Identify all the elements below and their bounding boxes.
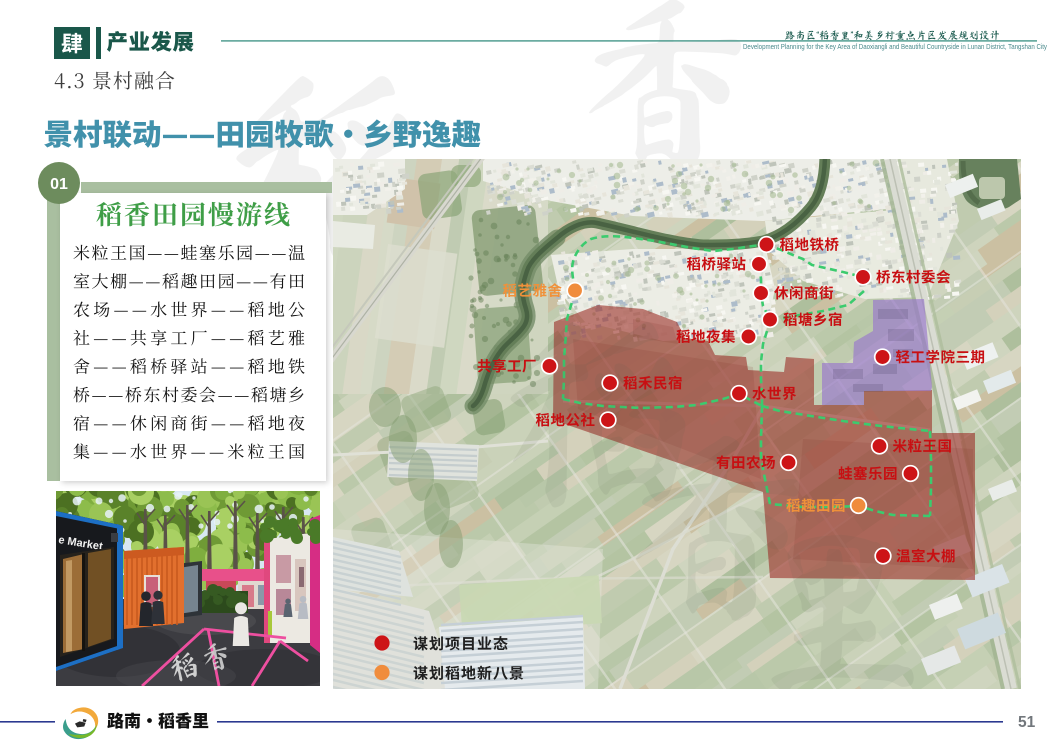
svg-text:51: 51 xyxy=(1018,714,1036,731)
